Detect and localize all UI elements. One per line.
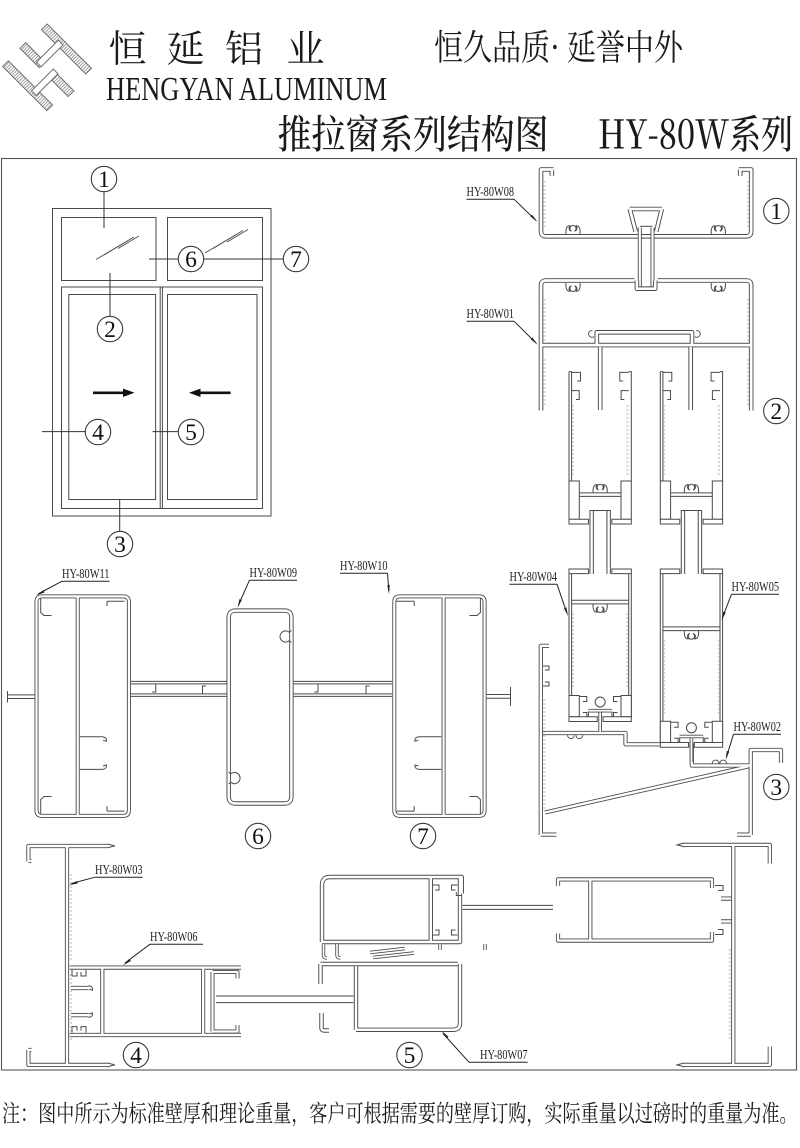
svg-text:HY-80W05: HY-80W05: [732, 579, 780, 594]
svg-text:3: 3: [770, 775, 782, 801]
svg-text:4: 4: [92, 420, 104, 446]
svg-text:1: 1: [98, 167, 110, 193]
svg-text:2: 2: [770, 399, 782, 425]
svg-text:5: 5: [185, 420, 197, 446]
svg-text:2: 2: [104, 317, 116, 343]
svg-text:HY-80W07: HY-80W07: [480, 1047, 528, 1062]
svg-text:HY-80W09: HY-80W09: [250, 565, 298, 580]
svg-text:HY-80W06: HY-80W06: [150, 929, 198, 944]
svg-text:1: 1: [770, 199, 782, 225]
svg-text:HY-80W04: HY-80W04: [510, 569, 558, 584]
svg-text:HY-80W10: HY-80W10: [340, 558, 388, 573]
svg-text:HENGYAN ALUMINUM: HENGYAN ALUMINUM: [106, 71, 387, 108]
svg-text:3: 3: [114, 532, 126, 558]
svg-text:6: 6: [252, 824, 264, 850]
svg-text:HY-80W08: HY-80W08: [467, 184, 515, 199]
svg-text:7: 7: [290, 247, 302, 273]
svg-text:HY-80W01: HY-80W01: [467, 306, 515, 321]
svg-text:6: 6: [185, 247, 197, 273]
svg-text:HY-80W02: HY-80W02: [734, 719, 782, 734]
svg-text:4: 4: [130, 1043, 142, 1069]
svg-text:HY-80W03: HY-80W03: [95, 862, 143, 877]
svg-text:HY-80W11: HY-80W11: [62, 566, 110, 581]
svg-text:7: 7: [417, 824, 429, 850]
svg-text:5: 5: [404, 1043, 416, 1069]
